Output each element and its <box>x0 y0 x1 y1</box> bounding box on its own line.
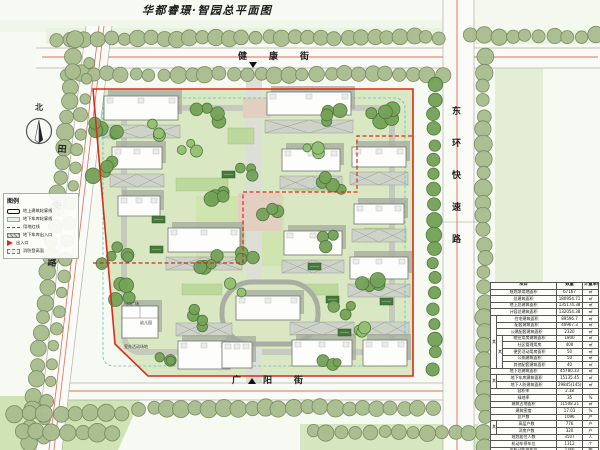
garage-outline-swatch <box>7 217 20 222</box>
indicator-table-header: 项目数量计量单位 <box>491 283 599 290</box>
legend-items: 地上建筑轮廓线地下车库轮廓线用地红线地下车库出入口出入口消防登高面 <box>7 207 76 255</box>
legend-label: 用地红线 <box>23 224 40 230</box>
street-label-right: 东环快速路 <box>449 106 462 266</box>
building-outline-swatch <box>7 209 20 214</box>
table-row: 其中物业用房建筑面积1800㎡ <box>491 335 599 342</box>
legend-panel: 图例 地上建筑轮廓线地下车库轮廓线用地红线地下车库出入口出入口消防登高面 <box>3 193 79 259</box>
legend-label: 消防登高面 <box>23 248 44 254</box>
table-row: 绿地率35% <box>491 395 599 402</box>
table-row: 建筑占地面积11508.21㎡ <box>491 401 599 408</box>
table-row: 规划居住人数3507人 <box>491 434 599 441</box>
table-row: 便民活动用房面积50㎡ <box>491 348 599 355</box>
table-row: 总户数1096户 <box>491 414 599 421</box>
table-row: 公建配套建筑面积2320㎡ <box>491 329 599 336</box>
street-label-top: 健康街 <box>238 49 331 62</box>
table-row: 容积率2.38 <box>491 388 599 395</box>
legend-item-fire-surface: 消防登高面 <box>7 247 76 255</box>
entrance-swatch <box>7 240 13 246</box>
table-row: 计容总建筑面积132054.38㎡ <box>491 309 599 316</box>
table-row: 洋房户数320户 <box>491 428 599 435</box>
legend-label: 地上建筑轮廓线 <box>23 208 52 214</box>
garage-entrance-swatch <box>7 233 20 238</box>
table-row: 配套建筑面积40967.3㎡ <box>491 322 599 329</box>
table-row: 规划净用地面积67167㎡ <box>491 289 599 296</box>
label-playground: 室外活动场地 <box>124 344 148 350</box>
north-arrow-icon <box>24 112 54 146</box>
street-label-bottom: 广阳街 <box>232 373 325 386</box>
legend-item-entrance: 出入口 <box>7 239 76 247</box>
legend-item-red-line: 用地红线 <box>7 223 76 231</box>
label-entry-plaza: 入口广场 <box>123 301 139 307</box>
table-row: 其中地下车库建筑面积15135.45㎡ <box>491 375 599 382</box>
indicator-table-body: 规划净用地面积67167㎡总建筑面积180954.71㎡地上总建筑面积13517… <box>491 289 599 450</box>
table-row: 建筑密度17.03% <box>491 408 599 415</box>
table-row: 地下总建筑面积45780.33㎡ <box>491 368 599 375</box>
legend-item-building-outline: 地上建筑轮廓线 <box>7 207 76 215</box>
site-plan-page: 华都睿璟·智园总平面图 健康街 东环快速路 田安路 广阳街 北 图例 地上建筑轮… <box>0 0 600 450</box>
legend-item-garage-entrance: 地下车库出入口 <box>7 231 76 239</box>
legend-item-garage-outline: 地下车库轮廓线 <box>7 215 76 223</box>
legend-label: 出入口 <box>16 240 29 246</box>
table-row: 地下人防建筑面积29845(145)㎡ <box>491 381 599 388</box>
fire-surface-swatch <box>7 249 20 254</box>
legend-title: 图例 <box>7 196 76 205</box>
table-row: 地上总建筑面积135174.38㎡ <box>491 302 599 309</box>
table-row: 其中住宅建筑面积89596.7㎡ <box>491 315 599 322</box>
table-row: 其他配套建筑面积40㎡ <box>491 362 599 369</box>
label-kindergarten: 幼儿园 <box>140 320 152 326</box>
table-row: 社区管理用房400㎡ <box>491 342 599 349</box>
north-label: 北 <box>24 103 54 112</box>
indicator-table: 项目数量计量单位 规划净用地面积67167㎡总建筑面积180954.71㎡地上总… <box>490 282 599 450</box>
north-indicator: 北 <box>24 103 54 150</box>
red-line-swatch <box>7 227 20 228</box>
legend-label: 地下车库轮廓线 <box>23 216 52 222</box>
table-row: 机动车停车位1312个 <box>491 441 599 448</box>
page-title: 华都睿璟·智园总平面图 <box>142 2 272 18</box>
table-row: 总建筑面积180954.71㎡ <box>491 296 599 303</box>
table-row: 公厕建筑面积50㎡ <box>491 355 599 362</box>
table-row: 其中高层户数776户 <box>491 421 599 428</box>
legend-label: 地下车库出入口 <box>23 232 52 238</box>
